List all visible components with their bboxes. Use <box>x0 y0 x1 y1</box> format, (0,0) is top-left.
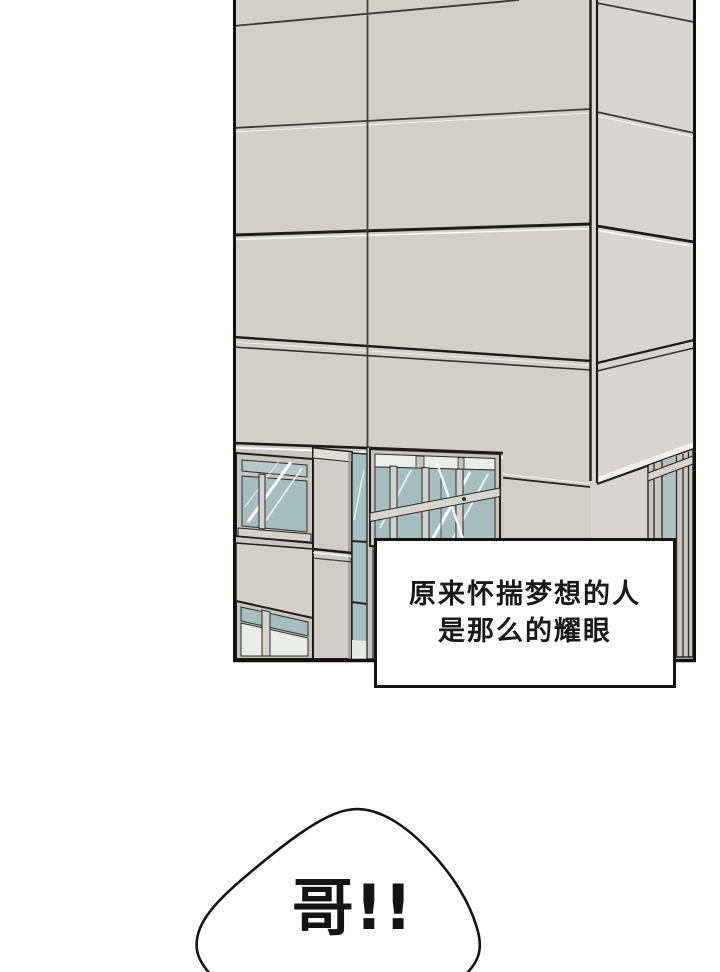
building-illustration <box>0 0 720 972</box>
page: 原来怀揣梦想的人 是那么的耀眼 哥!! <box>0 0 720 972</box>
caption-box: 原来怀揣梦想的人 是那么的耀眼 <box>374 538 676 688</box>
window-upper-right <box>370 449 500 548</box>
window-upper-left <box>236 453 313 543</box>
building-corner-edge <box>591 0 598 483</box>
caption-line-2: 是那么的耀眼 <box>438 617 612 647</box>
speech-bubble-text: 哥!! <box>235 868 470 949</box>
glass-strip <box>352 453 367 659</box>
caption-line-1: 原来怀揣梦想的人 <box>409 580 641 610</box>
facade-column <box>313 448 352 659</box>
